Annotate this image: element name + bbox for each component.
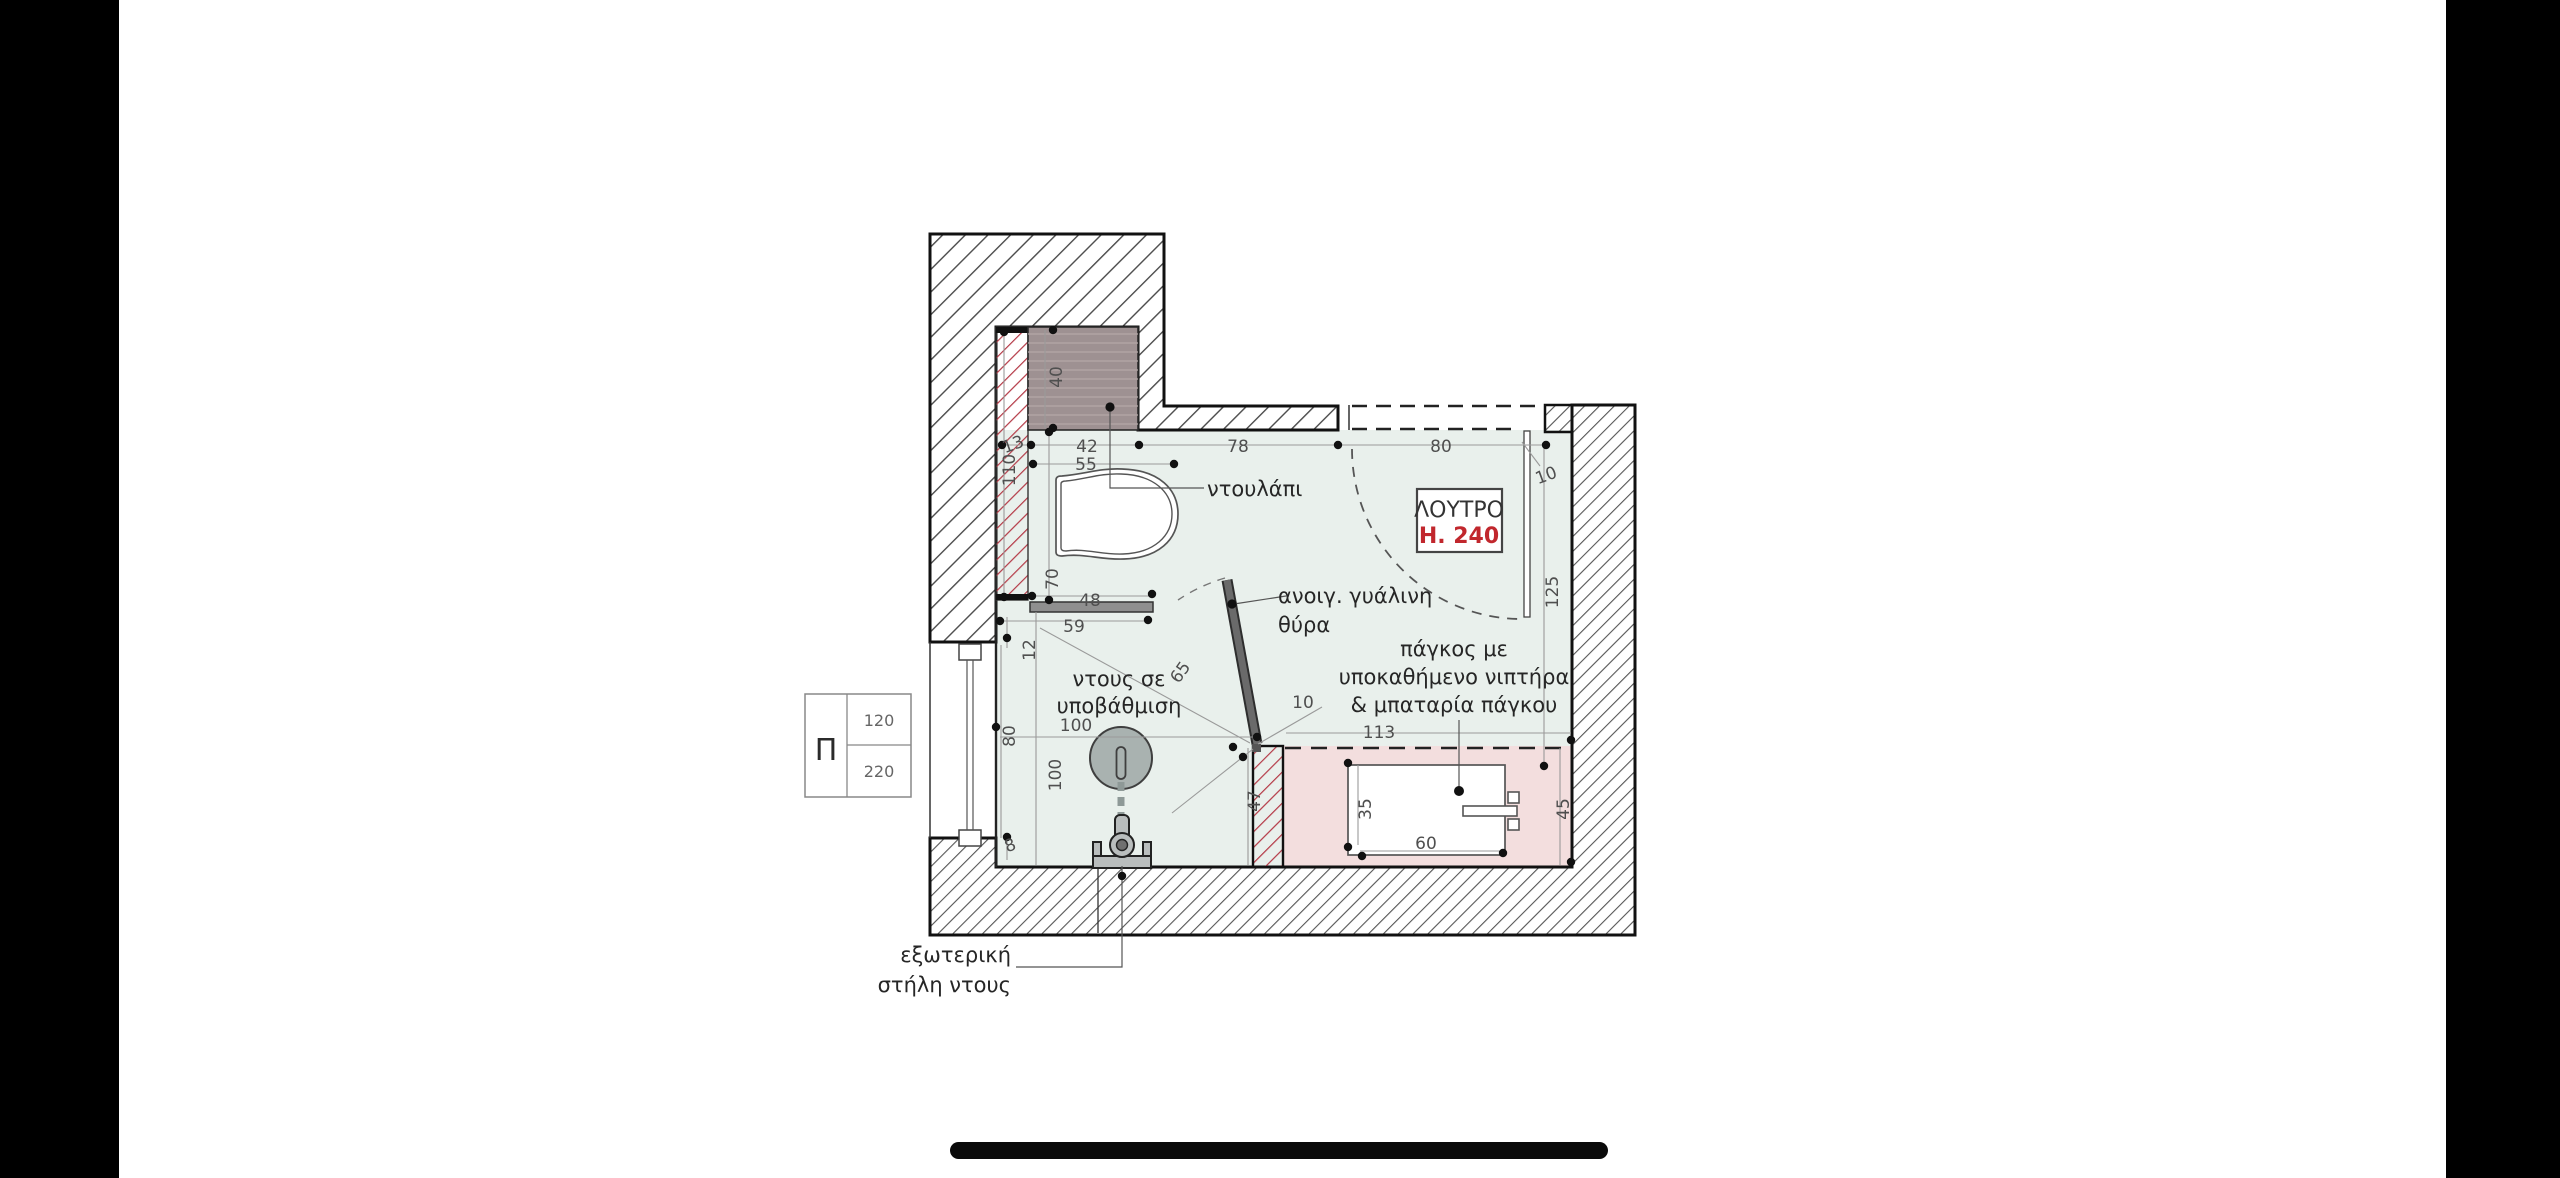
- faucet-handle-bottom: [1508, 819, 1519, 830]
- shower-drain-slot: [1117, 747, 1126, 779]
- glass-panel: [1524, 431, 1530, 617]
- room-tag: ΛΟΥΤΡΟ H. 240: [1414, 489, 1504, 552]
- dim-top-78: 78: [1227, 437, 1249, 457]
- dim-ledge-59: 59: [1063, 617, 1085, 637]
- dim-top-80: 80: [1430, 437, 1452, 457]
- dim-closet-42: 42: [1076, 437, 1098, 457]
- dim-sink-35: 35: [1356, 798, 1376, 820]
- counter-label-line1: πάγκος με: [1400, 637, 1508, 661]
- floor-plan-view: 40 13 110 42 55 78 80 10 125 70 48 59 12…: [0, 0, 2560, 1178]
- window-frame-top: [959, 644, 981, 660]
- door-label-line1: ανοιγ. γυάλινη: [1278, 584, 1432, 608]
- dim-sink-60: 60: [1415, 834, 1437, 854]
- room-name: ΛΟΥΤΡΟ: [1414, 498, 1504, 523]
- wall-corner-post: [1545, 405, 1572, 432]
- door-label-line2: θύρα: [1278, 613, 1330, 637]
- column-base-right: [1143, 842, 1151, 856]
- legend-symbol: Π: [815, 733, 838, 768]
- faucet-handle-top: [1508, 792, 1519, 803]
- closet-label: ντουλάπι: [1207, 477, 1302, 501]
- counter-label-line2: υποκαθήμενο νιπτήρα: [1339, 665, 1570, 689]
- dim-step-12: 12: [1020, 639, 1040, 661]
- dim-closet-depth: 40: [1047, 366, 1067, 388]
- dim-right-125: 125: [1543, 576, 1563, 608]
- room-height: H. 240: [1419, 524, 1499, 549]
- toilet: [1056, 469, 1178, 559]
- dim-shower-100-v: 100: [1046, 759, 1066, 791]
- legend-top-value: 120: [864, 711, 895, 730]
- dim-counter-45: 45: [1554, 798, 1574, 820]
- shower-label-line1: ντους σε: [1072, 667, 1165, 691]
- dim-wc-55: 55: [1075, 455, 1097, 475]
- ext-shower-label-line2: στήλη ντους: [878, 973, 1011, 997]
- dim-wall-47: 47: [1245, 790, 1265, 812]
- shower-label-line2: υποβάθμιση: [1057, 694, 1182, 718]
- window-legend: Π 120 220: [805, 694, 911, 797]
- counter-label-line3: & μπαταρία πάγκου: [1351, 693, 1558, 717]
- dim-wall-110: 110: [1000, 454, 1020, 486]
- faucet-spout: [1463, 806, 1517, 816]
- dim-ledge-48: 48: [1079, 591, 1101, 611]
- column-base-left: [1093, 842, 1101, 856]
- dim-door-10: 10: [1292, 693, 1314, 713]
- home-indicator-bar[interactable]: [950, 1142, 1608, 1159]
- dim-window-80: 80: [1000, 725, 1020, 747]
- dim-counter-113: 113: [1363, 723, 1395, 743]
- ext-shower-label-line1: εξωτερική: [900, 943, 1011, 967]
- legend-bottom-value: 220: [864, 762, 895, 781]
- window-frame-bottom: [959, 830, 981, 846]
- door-pivot: [1252, 744, 1261, 752]
- dim-wc-70: 70: [1043, 568, 1063, 590]
- dim-shower-100-h: 100: [1060, 716, 1092, 736]
